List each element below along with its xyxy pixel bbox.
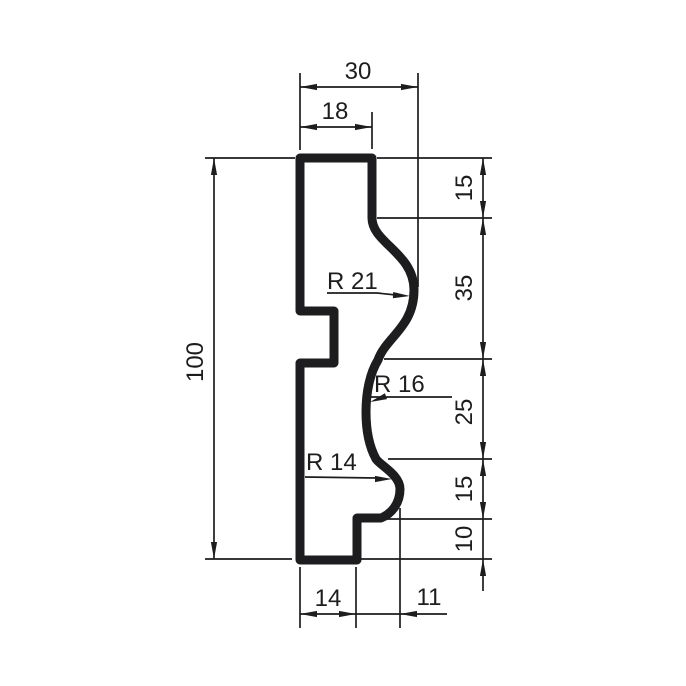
- radius-label-r21: R 21: [327, 268, 378, 295]
- dim-overall-height: 100: [182, 158, 295, 559]
- dim-arrow: [211, 158, 217, 175]
- dim-label-seg-lower-bulge: 15: [451, 476, 478, 503]
- drawing-sheet: 30 18 15: [0, 0, 686, 686]
- dim-label-top-face-width: 18: [322, 98, 349, 125]
- dim-arrow: [480, 502, 486, 519]
- dim-label-seg-ogee: 35: [451, 275, 478, 302]
- dim-top-face-width: 18: [300, 98, 372, 149]
- radius-label-r16: R 16: [374, 371, 425, 398]
- dim-arrow: [480, 442, 486, 459]
- dim-label-seg-base: 10: [451, 526, 478, 553]
- dim-arrow: [480, 559, 486, 576]
- dim-label-bulge-offset: 11: [417, 584, 442, 611]
- dim-arrow: [300, 124, 317, 130]
- dim-label-seg-top: 15: [451, 175, 478, 202]
- dim-arrow: [480, 359, 486, 376]
- radius-label-r14: R 14: [306, 449, 357, 476]
- dim-arrow: [339, 611, 356, 617]
- dim-arrow: [480, 218, 486, 235]
- drawing-svg: 30 18 15: [0, 0, 686, 686]
- drawing-root: 30 18 15: [182, 58, 492, 628]
- dim-arrow: [400, 611, 417, 617]
- dim-label-bottom-face-width: 14: [315, 585, 342, 612]
- leader-line: [305, 477, 376, 478]
- dim-arrow: [355, 124, 372, 130]
- dim-arrow: [401, 84, 418, 90]
- dim-arrow: [480, 158, 486, 175]
- dim-arrow: [480, 201, 486, 218]
- dim-label-overall-height: 100: [182, 342, 209, 382]
- dim-arrow: [480, 342, 486, 359]
- dim-arrow: [480, 459, 486, 476]
- dim-label-seg-cove: 25: [451, 399, 478, 426]
- dim-arrow: [211, 542, 217, 559]
- dim-arrow: [300, 84, 317, 90]
- dim-label-overall-width: 30: [345, 58, 372, 85]
- radius-callout-r16: R 16: [369, 371, 452, 405]
